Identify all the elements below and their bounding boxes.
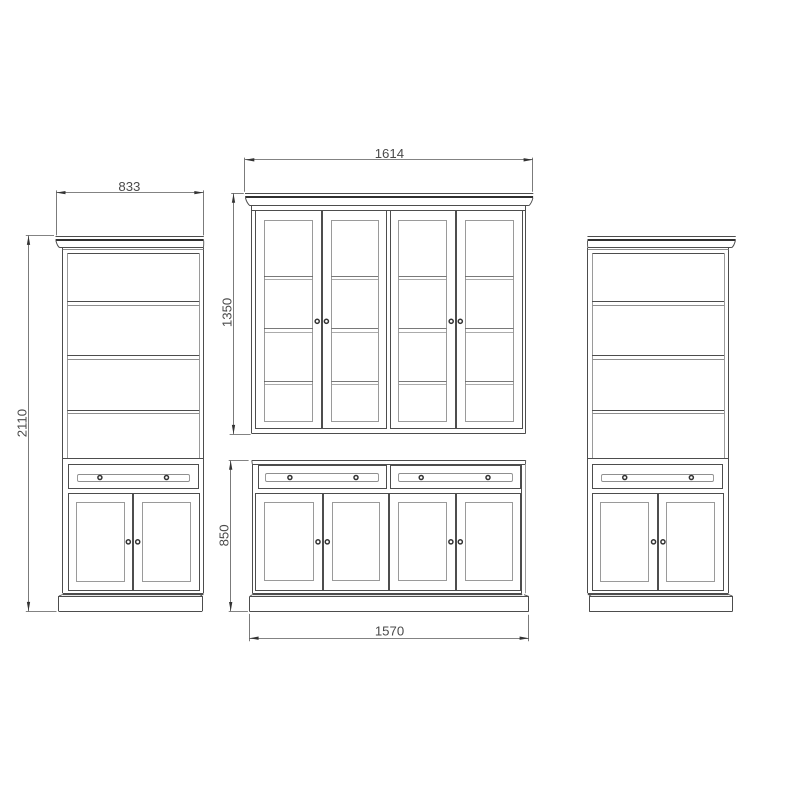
svg-text:833: 833 <box>118 179 140 194</box>
svg-text:1570: 1570 <box>375 624 404 639</box>
svg-text:850: 850 <box>216 524 231 546</box>
svg-text:1614: 1614 <box>375 146 404 161</box>
svg-text:2110: 2110 <box>15 409 30 437</box>
svg-text:1350: 1350 <box>220 298 235 327</box>
